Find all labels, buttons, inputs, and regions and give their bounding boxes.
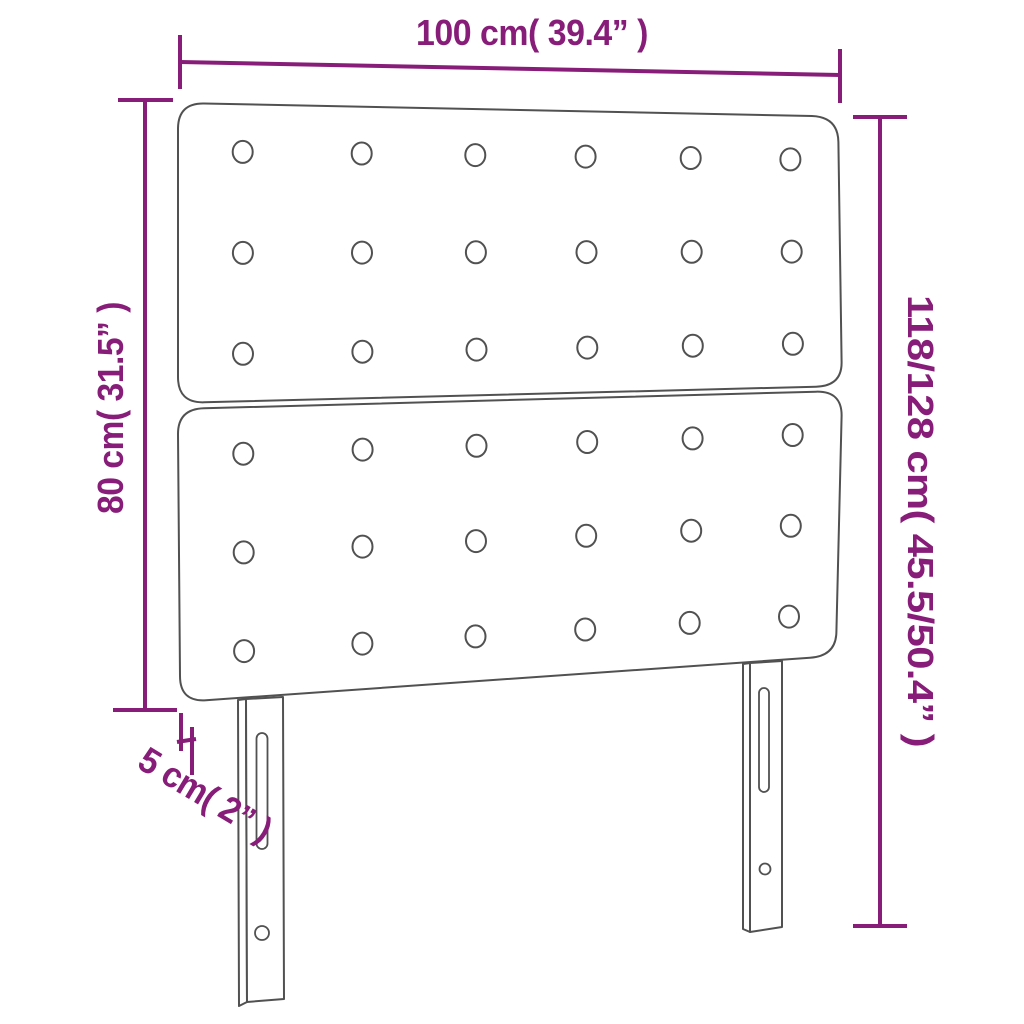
left-leg: [238, 697, 284, 1006]
headboard-bottom-panel: [178, 392, 842, 701]
tufting-button: [576, 525, 596, 547]
tufting-button: [682, 241, 702, 263]
tufting-button: [233, 242, 253, 264]
tufting-button: [466, 530, 486, 552]
tufting-button: [467, 435, 487, 457]
tufting-button: [683, 335, 703, 357]
width-dimension-label: 100 cm( 39.4” ): [416, 12, 648, 53]
tufting-button: [576, 146, 596, 168]
total-height-dimension: 118/128 cm( 45.5/50.4” ): [853, 117, 941, 926]
tufting-button: [681, 520, 701, 542]
tufting-button: [781, 515, 801, 537]
tufting-button: [352, 242, 372, 264]
tufting-button: [465, 144, 485, 166]
tufting-button: [780, 148, 800, 170]
tufting-button: [577, 337, 597, 359]
left-leg-screw-hole: [255, 926, 269, 940]
tufting-button: [577, 431, 597, 453]
tufting-button: [782, 241, 802, 263]
width-dimension: 100 cm( 39.4” ): [180, 12, 840, 103]
tufting-button: [352, 341, 372, 363]
tufting-button: [783, 424, 803, 446]
tufting-button: [467, 339, 487, 361]
width-dimension-line: [180, 62, 840, 75]
right-leg: [743, 661, 782, 932]
tufting-button: [779, 606, 799, 628]
tufting-button: [680, 612, 700, 634]
headboard-top-panel: [178, 103, 842, 402]
right-leg-slot: [759, 688, 769, 792]
tufting-button: [466, 241, 486, 263]
tufting-button: [234, 541, 254, 563]
tufting-button: [233, 343, 253, 365]
tufting-button: [234, 640, 254, 662]
right-leg-screw-hole: [760, 864, 771, 875]
panel-height-dimension-label: 80 cm( 31.5” ): [90, 302, 131, 514]
tufting-button: [233, 443, 253, 465]
tufting-button: [466, 625, 486, 647]
tufting-button: [353, 536, 373, 558]
tufting-button: [233, 141, 253, 163]
headboard-dimension-diagram: 100 cm( 39.4” ) 118/128 cm( 45.5/50.4” )…: [0, 0, 1024, 1024]
tufting-button: [783, 333, 803, 355]
panel-height-dimension: 80 cm( 31.5” ): [90, 100, 177, 710]
right-leg-side-face: [743, 663, 750, 932]
tufting-button: [352, 633, 372, 655]
total-height-dimension-label: 118/128 cm( 45.5/50.4” ): [900, 295, 941, 747]
tufting-button: [352, 143, 372, 165]
tufting-button: [577, 241, 597, 263]
tufting-button: [683, 427, 703, 449]
tufting-button: [681, 147, 701, 169]
tufting-button: [575, 619, 595, 641]
diagram-canvas: 100 cm( 39.4” ) 118/128 cm( 45.5/50.4” )…: [0, 0, 1024, 1024]
tufting-button: [353, 439, 373, 461]
